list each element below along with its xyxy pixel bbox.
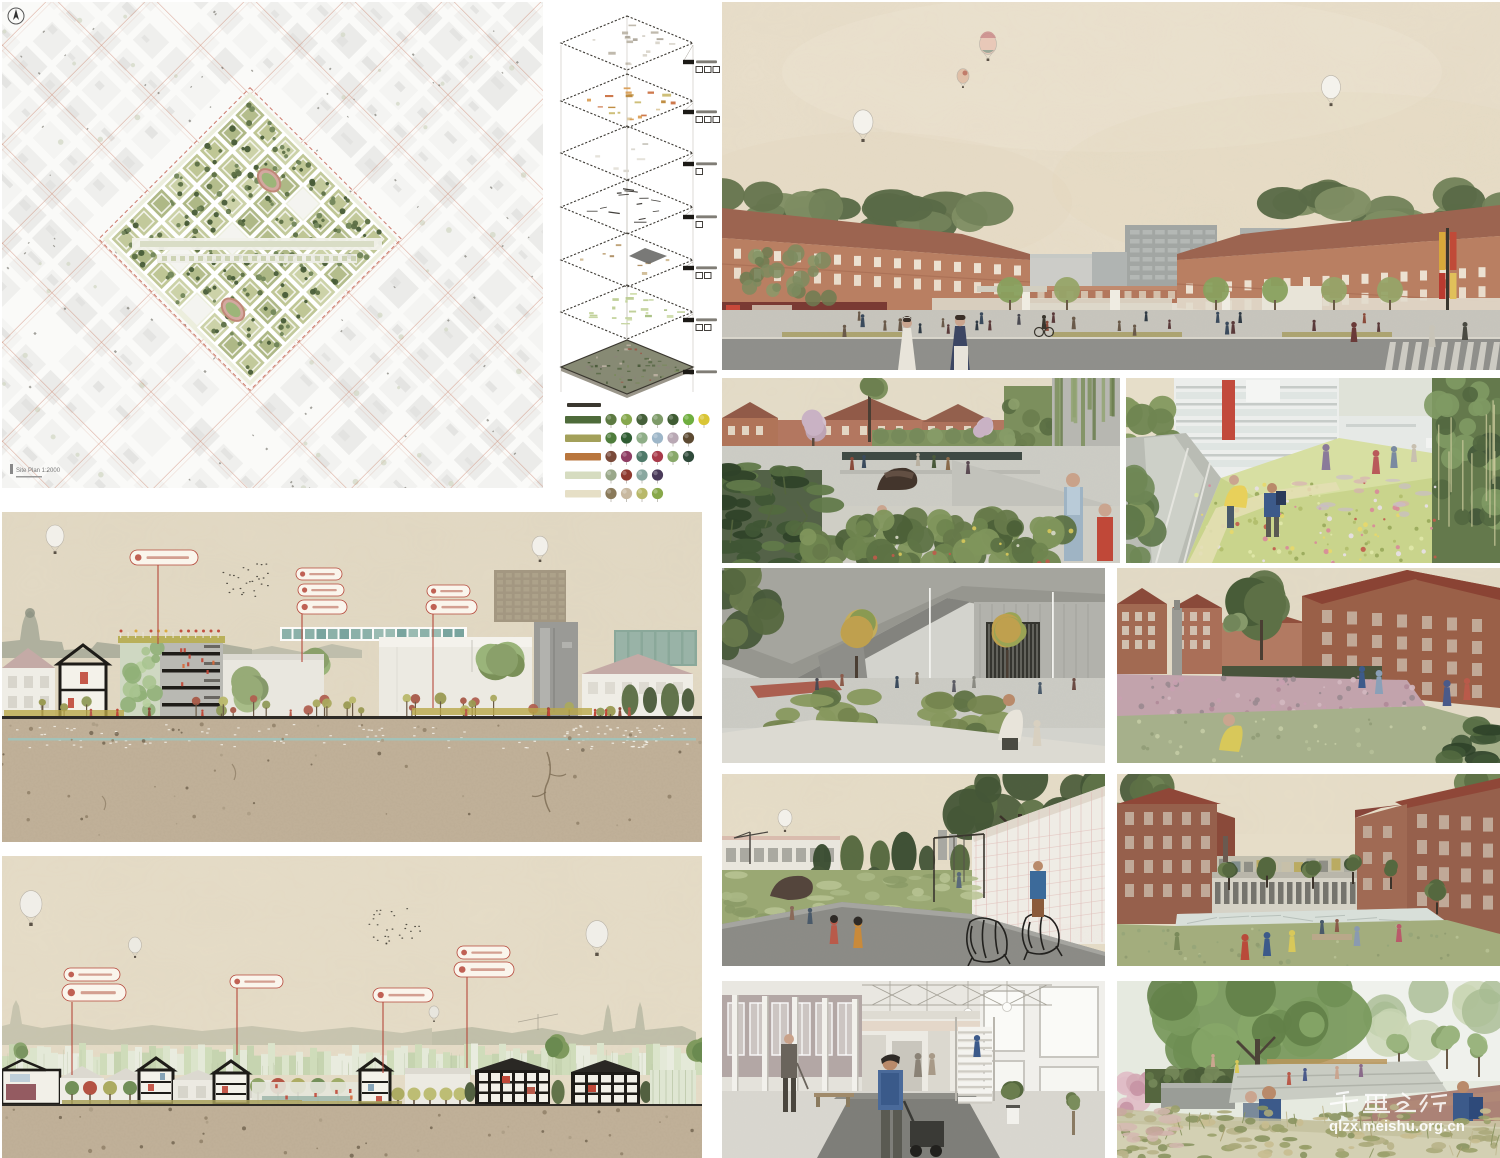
- svg-text:Site Plan 1:2000: Site Plan 1:2000: [16, 468, 61, 474]
- svg-text:qlzx.meishu.org.cn: qlzx.meishu.org.cn: [1329, 1118, 1465, 1135]
